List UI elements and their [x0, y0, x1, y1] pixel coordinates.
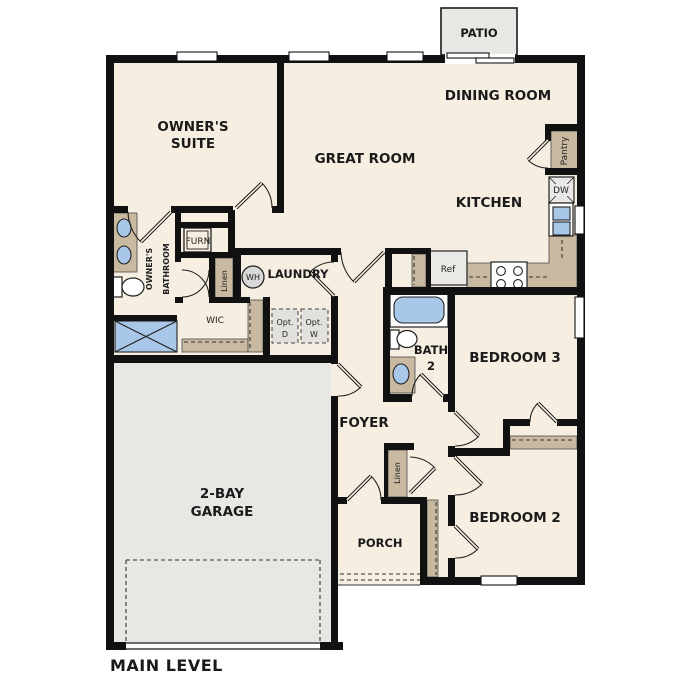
label-owners-bathroom-line1: OWNER'S — [145, 248, 154, 290]
window-icon — [575, 206, 584, 234]
room-label-bedroom3: BEDROOM 3 — [469, 350, 561, 366]
sink-icon — [393, 364, 409, 384]
room-label-kitchen: KITCHEN — [456, 195, 522, 211]
garage-floor — [113, 362, 331, 643]
plan-title: MAIN LEVEL — [110, 656, 223, 675]
label-furn: FURN — [186, 237, 211, 247]
window-icon — [387, 52, 423, 61]
room-label-wic: WIC — [206, 316, 224, 326]
label-opt-d-line2: D — [282, 330, 288, 339]
label-linen-hall: Linen — [220, 270, 229, 292]
sliding-door-icon — [445, 53, 515, 64]
wic-shelf-bottom — [182, 339, 248, 352]
garage-door-opening — [126, 642, 320, 651]
sink-icon — [117, 246, 131, 264]
room-label-garage-line1: 2-BAY — [200, 486, 244, 502]
tub-icon — [394, 297, 444, 323]
room-label-bath2-line2: 2 — [427, 359, 435, 373]
window-icon — [289, 52, 329, 61]
room-label-owners-suite-line1: OWNER'S — [157, 119, 228, 135]
label-opt-d-line1: Opt. — [276, 318, 293, 327]
room-label-bedroom2: BEDROOM 2 — [469, 510, 561, 526]
window-icon — [481, 576, 517, 585]
floor-plan-canvas: PATIO DINING ROOM OWNER'S SUITE GREAT RO… — [0, 0, 687, 687]
window-icon — [177, 52, 217, 61]
label-opt-w-line1: Opt. — [305, 318, 322, 327]
label-ref: Ref — [441, 265, 456, 275]
room-label-bath2-line1: BATH — [414, 343, 448, 357]
room-label-laundry: LAUNDRY — [268, 267, 330, 281]
toilet-icon — [122, 278, 144, 296]
label-pantry: Pantry — [560, 136, 570, 165]
bedroom3-closet-shelf — [510, 436, 577, 449]
label-dw: DW — [553, 186, 569, 196]
room-label-garage-line2: GARAGE — [191, 504, 254, 520]
room-label-great-room: GREAT ROOM — [315, 151, 416, 167]
label-opt-w-line2: W — [310, 330, 318, 339]
room-label-porch: PORCH — [357, 536, 402, 550]
floor-plan: PATIO DINING ROOM OWNER'S SUITE GREAT RO… — [0, 0, 687, 687]
label-linen-foyer: Linen — [393, 462, 402, 484]
room-label-owners-suite-line2: SUITE — [171, 136, 215, 152]
room-label-patio: PATIO — [460, 26, 498, 40]
room-label-dining-room: DINING ROOM — [445, 88, 551, 104]
window-icon — [575, 297, 584, 338]
label-wh: WH — [246, 273, 260, 282]
label-owners-bathroom-line2: BATHROOM — [162, 243, 171, 295]
room-label-foyer: FOYER — [339, 415, 389, 431]
